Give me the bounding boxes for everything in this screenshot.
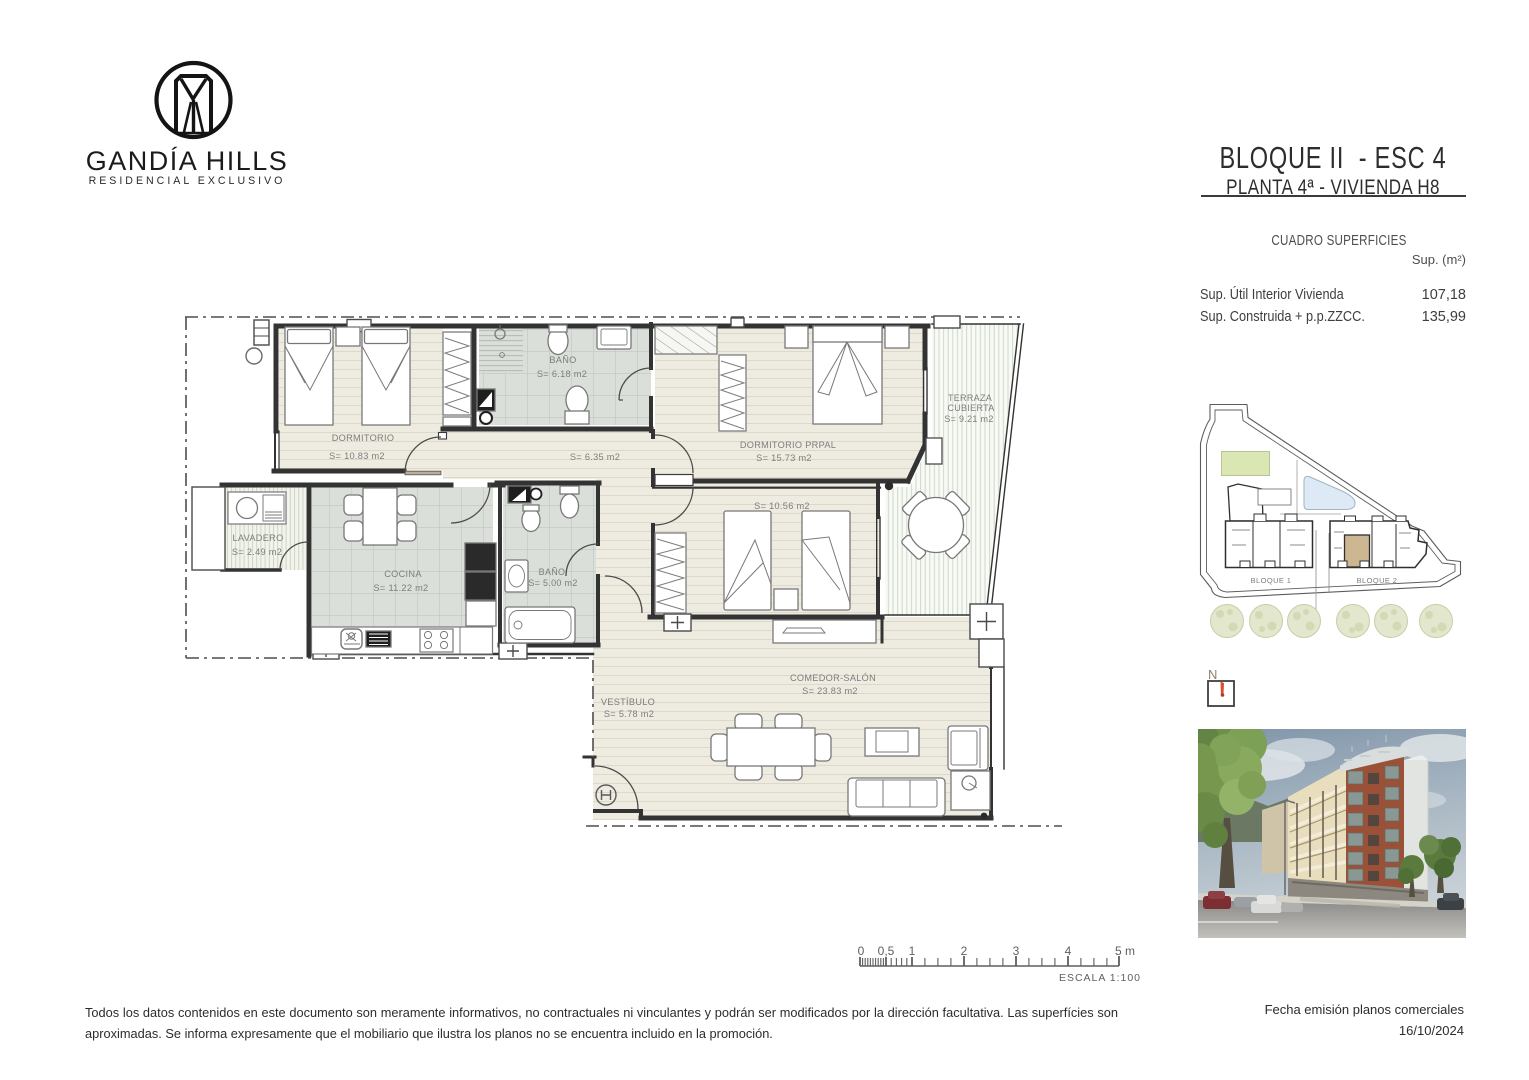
svg-text:CUBIERTA: CUBIERTA bbox=[947, 403, 994, 413]
svg-text:BAÑO: BAÑO bbox=[549, 355, 576, 365]
svg-text:S= 11.22 m2: S= 11.22 m2 bbox=[374, 583, 429, 593]
svg-text:S= 15.73 m2: S= 15.73 m2 bbox=[756, 453, 812, 463]
svg-text:1: 1 bbox=[909, 944, 916, 958]
svg-text:S= 10.56 m2: S= 10.56 m2 bbox=[754, 501, 810, 511]
svg-text:BAÑO: BAÑO bbox=[539, 567, 566, 577]
svg-text:S= 6.35 m2: S= 6.35 m2 bbox=[570, 452, 620, 462]
svg-text:COCINA: COCINA bbox=[384, 569, 422, 579]
svg-text:4: 4 bbox=[1065, 944, 1072, 958]
svg-text:S= 9.21 m2: S= 9.21 m2 bbox=[944, 414, 993, 424]
svg-text:DORMITORIO PRPAL: DORMITORIO PRPAL bbox=[740, 440, 836, 450]
svg-text:5 m: 5 m bbox=[1115, 944, 1135, 958]
svg-text:LAVADERO: LAVADERO bbox=[232, 533, 283, 543]
svg-text:S= 6.18 m2: S= 6.18 m2 bbox=[537, 369, 587, 379]
svg-text:S= 5.00 m2: S= 5.00 m2 bbox=[528, 578, 577, 588]
svg-text:S= 23.83 m2: S= 23.83 m2 bbox=[802, 686, 858, 696]
svg-text:S= 2.49 m2: S= 2.49 m2 bbox=[232, 547, 282, 557]
svg-text:COMEDOR-SALÓN: COMEDOR-SALÓN bbox=[790, 673, 876, 683]
svg-text:0: 0 bbox=[858, 944, 865, 958]
svg-text:S= 5.78 m2: S= 5.78 m2 bbox=[604, 709, 654, 719]
svg-text:VESTÍBULO: VESTÍBULO bbox=[601, 697, 655, 707]
svg-text:3: 3 bbox=[1013, 944, 1020, 958]
svg-text:BLOQUE 2: BLOQUE 2 bbox=[1357, 576, 1398, 585]
svg-text:0,5: 0,5 bbox=[878, 944, 895, 958]
svg-text:2: 2 bbox=[961, 944, 968, 958]
svg-text:ESCALA 1:100: ESCALA 1:100 bbox=[1059, 972, 1141, 984]
svg-text:N: N bbox=[1208, 667, 1217, 682]
svg-text:TERRAZA: TERRAZA bbox=[948, 393, 992, 403]
svg-text:DORMITORIO: DORMITORIO bbox=[332, 433, 395, 443]
svg-text:S= 10.83 m2: S= 10.83 m2 bbox=[329, 451, 385, 461]
svg-text:BLOQUE 1: BLOQUE 1 bbox=[1251, 576, 1292, 585]
